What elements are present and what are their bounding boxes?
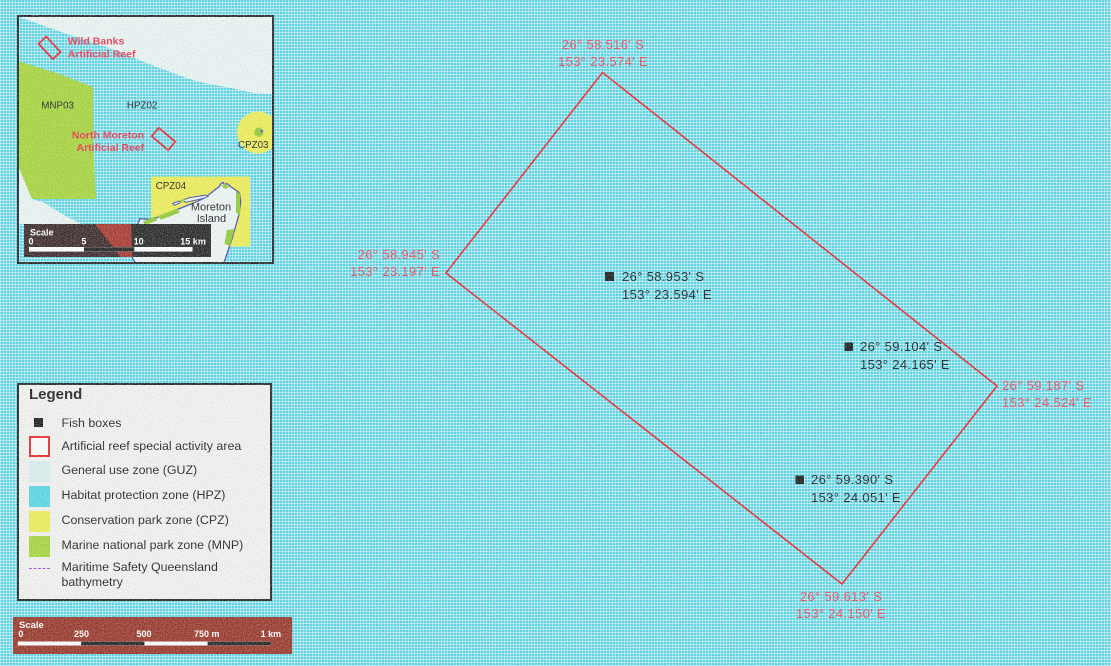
svg-text:Moreton: Moreton xyxy=(191,202,231,214)
svg-text:15 km: 15 km xyxy=(180,237,206,247)
svg-text:Scale: Scale xyxy=(30,228,54,238)
svg-text:Artificial Reef: Artificial Reef xyxy=(77,142,145,154)
svg-text:10: 10 xyxy=(134,237,144,247)
svg-text:North Moreton: North Moreton xyxy=(72,129,144,141)
svg-text:Artificial Reef: Artificial Reef xyxy=(68,48,136,60)
svg-text:Island: Island xyxy=(197,213,226,225)
svg-text:MNP03: MNP03 xyxy=(41,101,74,112)
svg-text:CPZ03: CPZ03 xyxy=(238,140,269,151)
svg-text:5: 5 xyxy=(81,237,86,247)
svg-text:HPZ02: HPZ02 xyxy=(127,101,157,112)
svg-text:CPZ04: CPZ04 xyxy=(156,181,187,192)
svg-text:Wild Banks: Wild Banks xyxy=(68,35,125,47)
svg-text:0: 0 xyxy=(28,237,33,247)
